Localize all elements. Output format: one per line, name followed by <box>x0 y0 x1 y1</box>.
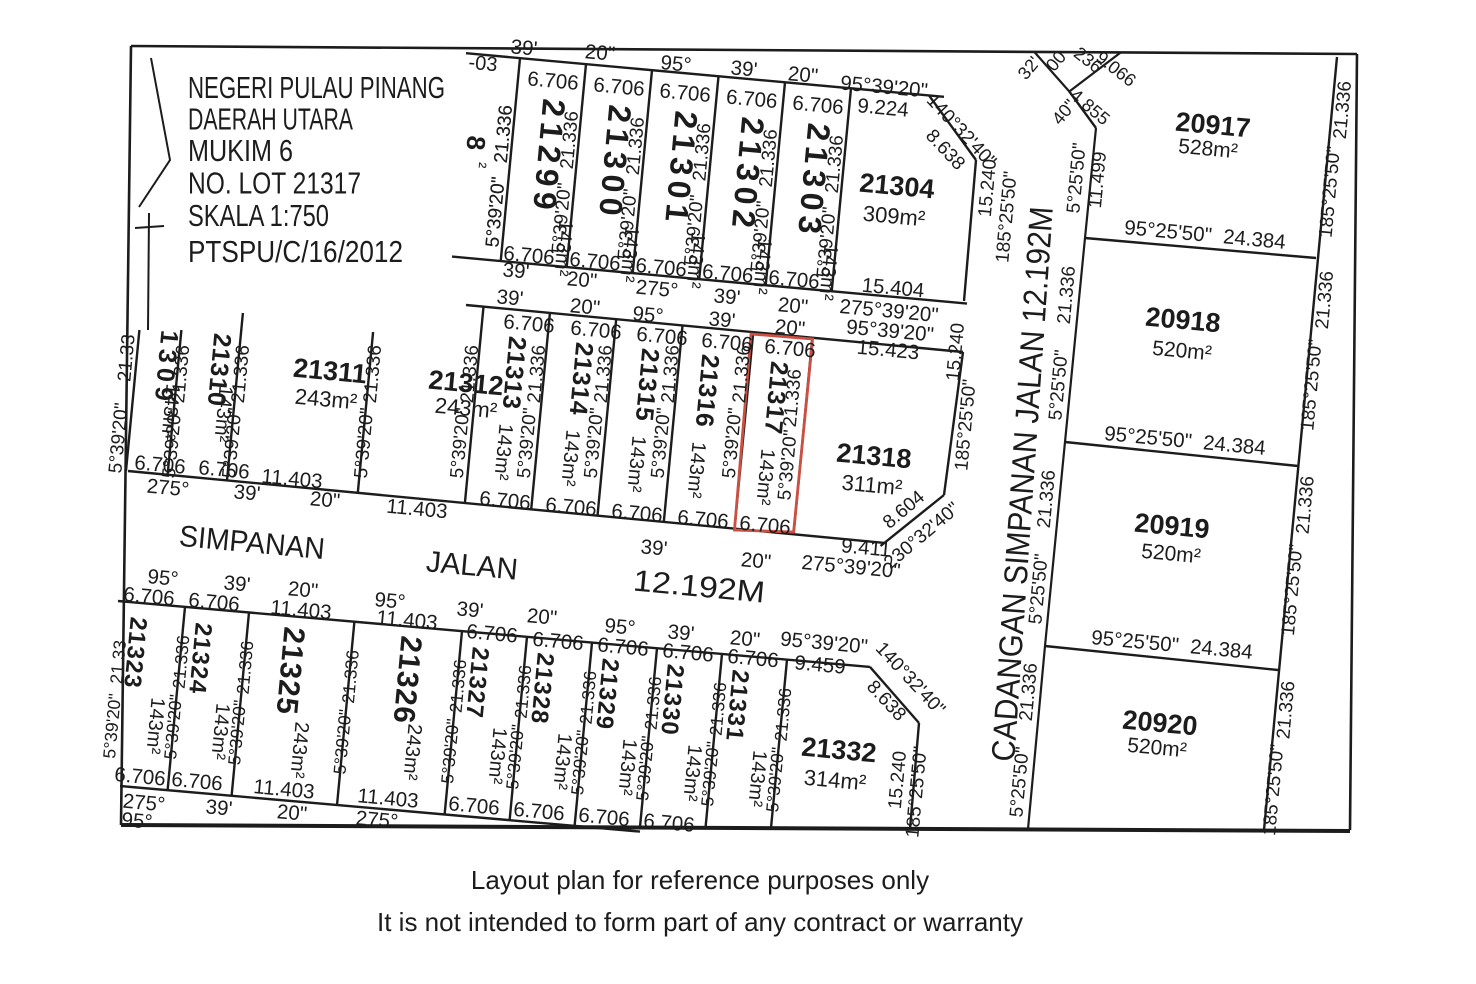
svg-text:MUKIM 6: MUKIM 6 <box>188 133 293 168</box>
svg-text:6.706: 6.706 <box>767 266 820 294</box>
svg-text:20": 20" <box>584 40 616 66</box>
svg-text:39': 39' <box>456 597 485 622</box>
svg-text:39': 39' <box>730 56 759 81</box>
svg-text:95°: 95° <box>373 588 406 614</box>
svg-text:6.706: 6.706 <box>791 91 844 119</box>
svg-text:9.459: 9.459 <box>793 651 846 679</box>
svg-text:-03: -03 <box>468 52 499 77</box>
svg-text:SKALA 1:750: SKALA 1:750 <box>188 198 329 233</box>
svg-text:39': 39' <box>640 535 669 560</box>
svg-text:95°: 95° <box>659 51 692 77</box>
svg-text:6.706: 6.706 <box>133 451 186 479</box>
svg-text:6.706: 6.706 <box>170 768 223 796</box>
svg-text:20": 20" <box>787 62 819 88</box>
svg-text:20": 20" <box>276 800 308 826</box>
svg-text:39': 39' <box>205 795 234 820</box>
svg-text:95°: 95° <box>603 614 636 640</box>
svg-text:39': 39' <box>496 285 525 310</box>
svg-text:39': 39' <box>233 480 262 505</box>
svg-text:275°: 275° <box>635 276 679 303</box>
svg-text:PTSPU/C/16/2012: PTSPU/C/16/2012 <box>188 234 403 269</box>
svg-text:6.706: 6.706 <box>526 67 579 95</box>
svg-text:6.706: 6.706 <box>738 512 791 540</box>
svg-text:6.706: 6.706 <box>113 763 166 791</box>
svg-text:20": 20" <box>309 487 341 513</box>
svg-text:95°: 95° <box>146 565 179 591</box>
svg-text:6.706: 6.706 <box>725 85 778 113</box>
svg-text:20": 20" <box>287 577 319 603</box>
svg-text:6.706: 6.706 <box>642 809 695 837</box>
svg-text:It is not intended to form par: It is not intended to form part of any c… <box>377 907 1023 937</box>
svg-text:6.706: 6.706 <box>635 323 688 351</box>
svg-text:Layout plan for reference purp: Layout plan for reference purposes only <box>471 865 929 895</box>
svg-text:6.706: 6.706 <box>569 316 622 344</box>
svg-text:6.706: 6.706 <box>465 620 518 648</box>
svg-text:21.33: 21.33 <box>106 639 130 684</box>
svg-text:20": 20" <box>740 548 772 574</box>
svg-text:6.706: 6.706 <box>512 798 565 826</box>
svg-text:39': 39' <box>223 571 252 596</box>
svg-text:8: 8 <box>460 134 491 151</box>
svg-text:39': 39' <box>713 284 742 309</box>
svg-text:6.706: 6.706 <box>659 79 712 107</box>
svg-text:6.706: 6.706 <box>577 804 630 832</box>
svg-text:21.33: 21.33 <box>114 333 139 382</box>
svg-text:6.706: 6.706 <box>701 260 754 288</box>
svg-text:6.706: 6.706 <box>610 500 663 528</box>
svg-text:6.706: 6.706 <box>197 456 250 484</box>
svg-text:6.706: 6.706 <box>502 310 555 338</box>
svg-text:6.706: 6.706 <box>544 493 597 521</box>
svg-text:39': 39' <box>667 620 696 645</box>
svg-text:DAERAH UTARA: DAERAH UTARA <box>188 102 353 137</box>
svg-text:20": 20" <box>566 267 598 293</box>
svg-text:6.706: 6.706 <box>676 506 729 534</box>
svg-text:6.706: 6.706 <box>700 329 753 357</box>
svg-text:6.706: 6.706 <box>763 335 816 363</box>
svg-text:20": 20" <box>526 604 558 630</box>
svg-text:6.706: 6.706 <box>592 73 645 101</box>
svg-text:39': 39' <box>502 258 531 283</box>
svg-text:6.706: 6.706 <box>531 628 584 656</box>
svg-text:275°: 275° <box>355 807 399 834</box>
svg-text:6.706: 6.706 <box>478 487 531 515</box>
svg-text:39': 39' <box>510 35 539 60</box>
svg-text:NEGERI PULAU PINANG: NEGERI PULAU PINANG <box>188 70 445 105</box>
svg-text:20": 20" <box>729 626 761 652</box>
svg-text:275°: 275° <box>146 475 190 502</box>
svg-text:NO. LOT 21317: NO. LOT 21317 <box>188 166 361 201</box>
svg-text:95°: 95° <box>120 808 153 834</box>
svg-text:6.706: 6.706 <box>447 792 500 820</box>
